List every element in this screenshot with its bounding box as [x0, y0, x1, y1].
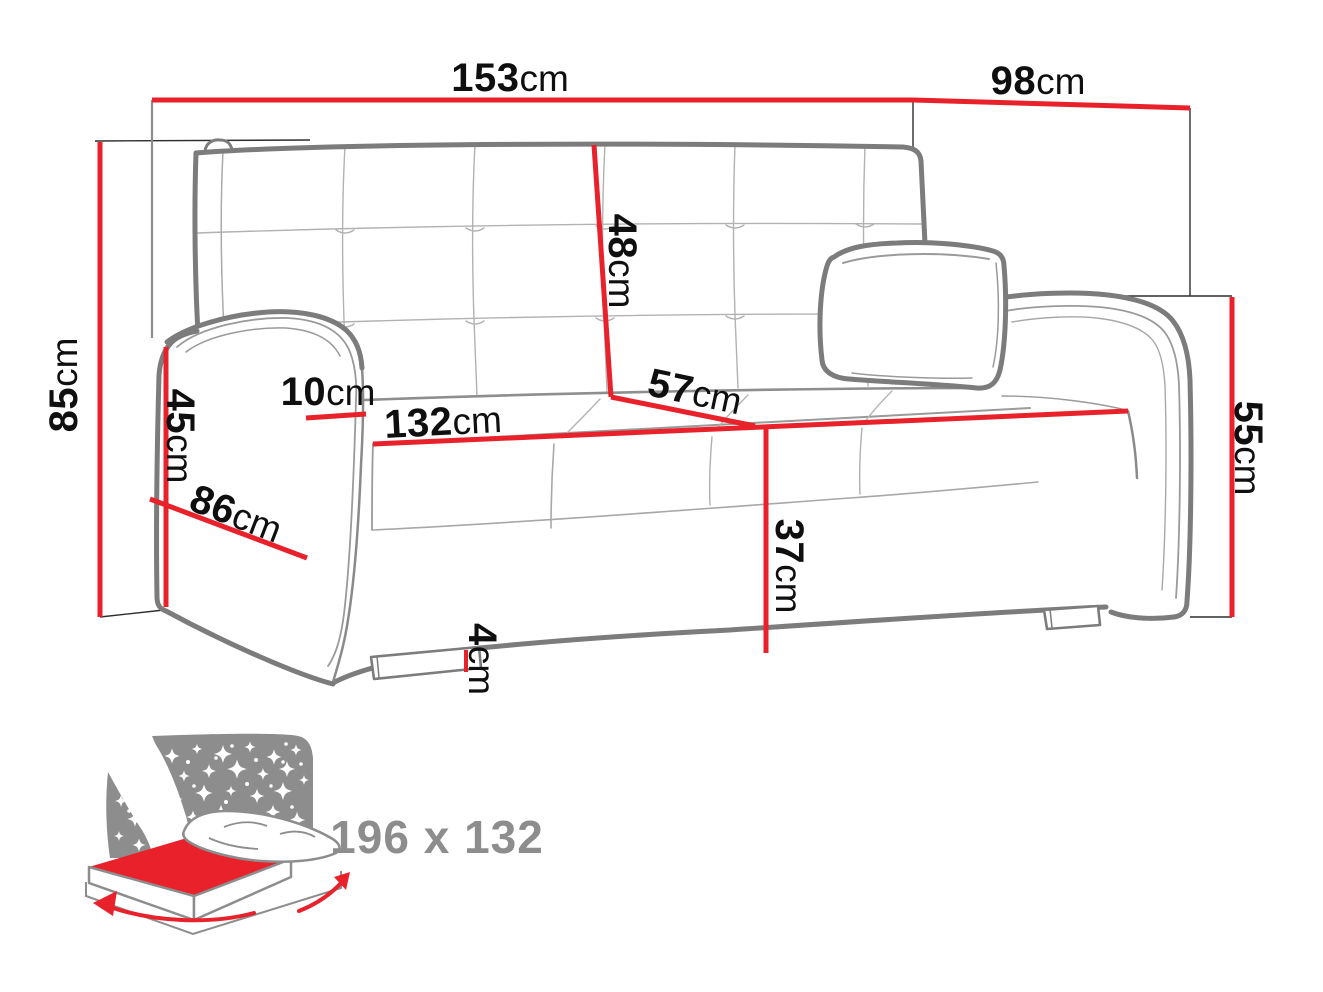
dimension-unit: cm: [1227, 446, 1268, 495]
dimension-value: 98: [991, 59, 1037, 103]
dim-label-seat-height: 37cm: [769, 519, 809, 614]
dimension-value: 37: [767, 519, 811, 565]
dimension-value: 153: [451, 56, 519, 100]
dimension-unit: cm: [159, 434, 200, 483]
dimension-unit: cm: [519, 58, 568, 99]
sofa-dimension-diagram: 153cm 98cm 85cm 45cm 10cm 86cm 132cm 48c…: [0, 0, 1323, 992]
dim-label-leg-height: 4cm: [462, 623, 502, 695]
dim-label-backrest-height: 48cm: [602, 214, 642, 309]
dimension-unit: cm: [601, 259, 642, 308]
dimension-value: 55: [1226, 401, 1270, 447]
dimension-value: 45: [158, 389, 202, 435]
dimension-value: 10: [281, 370, 327, 414]
dim-label-arm-outer-height: 55cm: [1228, 401, 1268, 496]
cushion-pillow: [820, 242, 1006, 388]
dim-label-seat-width: 132cm: [383, 399, 503, 445]
sleeping-area-size-label: 196 x 132: [330, 814, 544, 860]
dimension-value: 4: [460, 623, 504, 646]
dimension-unit: cm: [326, 372, 375, 413]
dimension-unit: cm: [1036, 61, 1085, 102]
dim-label-armrest-top-width: 10cm: [281, 372, 376, 412]
dimension-unit: cm: [768, 564, 809, 613]
dimension-value: 132: [383, 400, 453, 448]
left-armrest: [157, 312, 363, 684]
dimension-unit: cm: [451, 399, 502, 443]
dim-label-overall-height: 85cm: [44, 338, 84, 433]
dim-label-overall-depth: 98cm: [991, 61, 1086, 101]
dimension-unit: cm: [461, 646, 502, 695]
dim-label-armrest-front-height: 45cm: [160, 389, 200, 484]
dim-label-overall-width: 153cm: [451, 58, 569, 98]
dimension-value: 85: [42, 387, 86, 433]
dimension-unit: cm: [44, 338, 85, 387]
dimension-value: 48: [600, 214, 644, 260]
sleeping-area-icon: [86, 734, 350, 934]
